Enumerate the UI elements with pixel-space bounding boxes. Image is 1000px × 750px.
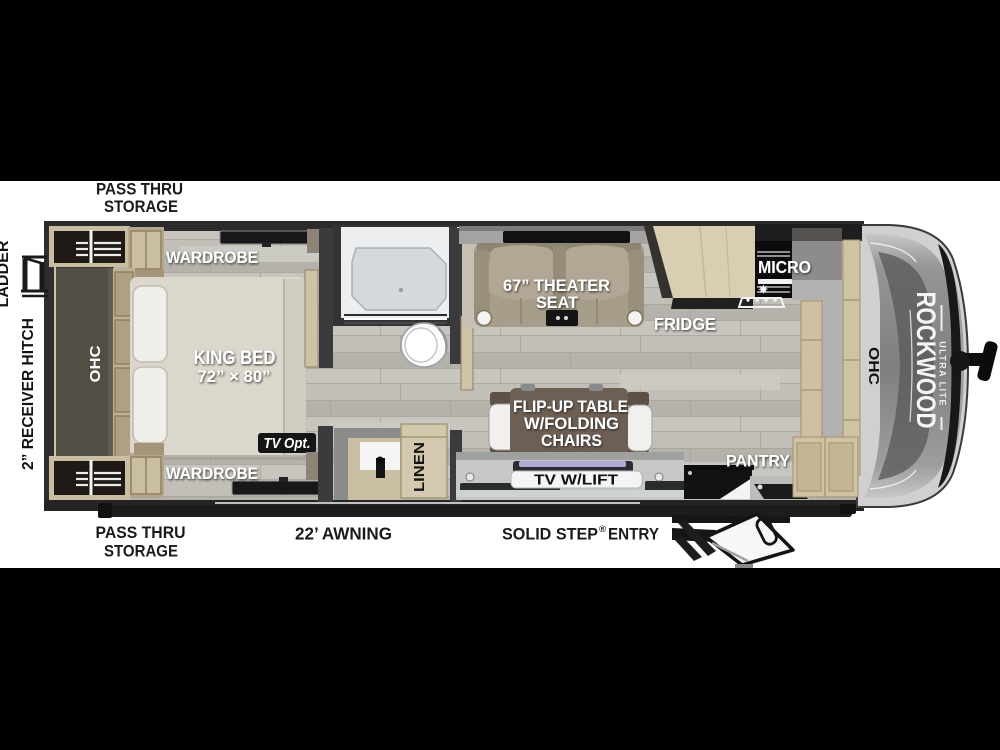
svg-text:72” × 80”: 72” × 80” — [198, 367, 271, 386]
svg-text:FRIDGE: FRIDGE — [654, 314, 716, 334]
svg-text:SEAT: SEAT — [536, 293, 579, 312]
svg-text:WARDROBE: WARDROBE — [166, 249, 258, 267]
svg-text:LADDER: LADDER — [0, 241, 12, 308]
svg-text:STORAGE: STORAGE — [104, 197, 178, 216]
svg-text:CHAIRS: CHAIRS — [541, 432, 602, 450]
svg-text:WARDROBE: WARDROBE — [166, 465, 258, 483]
svg-text:PASS THRU: PASS THRU — [96, 180, 183, 199]
svg-text:STORAGE: STORAGE — [104, 542, 178, 561]
svg-text:PASS THRU: PASS THRU — [96, 523, 186, 542]
svg-text:TV Opt.: TV Opt. — [264, 436, 311, 452]
svg-text:®: ® — [599, 524, 606, 535]
svg-text:SOLID STEP: SOLID STEP — [502, 525, 598, 544]
svg-text:KING BED: KING BED — [194, 347, 276, 369]
svg-text:MICRO: MICRO — [758, 257, 811, 277]
svg-text:FLIP-UP TABLE: FLIP-UP TABLE — [513, 398, 628, 416]
svg-text:W/FOLDING: W/FOLDING — [524, 415, 619, 433]
svg-text:ROCKWOOD: ROCKWOOD — [911, 292, 941, 429]
svg-text:OHC: OHC — [865, 347, 882, 385]
svg-text:OHC: OHC — [87, 345, 104, 382]
svg-text:LINEN: LINEN — [411, 442, 428, 492]
svg-text:ENTRY: ENTRY — [608, 525, 660, 544]
svg-text:2” RECEIVER HITCH: 2” RECEIVER HITCH — [20, 318, 37, 470]
svg-text:TV W/LIFT: TV W/LIFT — [534, 473, 618, 489]
svg-text:PANTRY: PANTRY — [726, 452, 791, 471]
svg-text:22’ AWNING: 22’ AWNING — [295, 524, 392, 544]
svg-text:ULTRA LITE: ULTRA LITE — [938, 341, 948, 407]
